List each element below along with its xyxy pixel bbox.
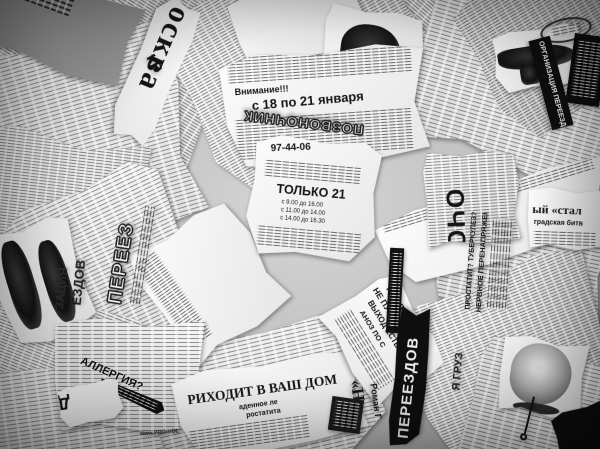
dark-stamp (328, 396, 364, 434)
website-url: www.PRO-VOL (140, 430, 180, 438)
face-photo (507, 340, 576, 409)
prostatit-scrap: ПРОСТАТИТ? ТУБЕРКУЛЕЗ? НЕРВНОЕ ПЕРЕНАПРЯ… (459, 211, 522, 315)
scrap-paper: ПРОСТАТИТ? ТУБЕРКУЛЕЗ? НЕРВНОЕ ПЕРЕНАПРЯ… (459, 211, 522, 315)
stal-headline-scrap: ый «стал градская битв (527, 187, 600, 252)
text-block (264, 160, 361, 184)
text-block (533, 231, 595, 247)
headline-pereezdov: ПЕРЕЕЗДОВ (396, 336, 422, 439)
scrap-paper: ый «стал градская битв (527, 187, 600, 252)
headline-stal: ый «стал (532, 203, 582, 217)
newspaper-collage-photo: осква кв Внимание!!! с 18 по 21 января П… (0, 0, 600, 449)
headline-ezdov: ЕЗДОВ (70, 259, 88, 306)
byline-roman: Роман Г (368, 383, 382, 420)
stamp-speckle (332, 401, 360, 430)
chip-text-lines (570, 40, 600, 99)
pen-ring (519, 433, 527, 441)
text-block (188, 415, 310, 449)
headline-pozvonochnik: ПОЗВОНОЧНИК (243, 109, 365, 138)
headline-tolko21: ТОЛЬКО 21 (276, 183, 346, 201)
scrap-paper: Я ГРУЗ (445, 324, 481, 396)
zaciya-ezdov-scrap: ЗАЦИЯ ЕЗДОВ (48, 225, 101, 319)
headline-zaciya: ЗАЦИЯ (53, 267, 69, 310)
ya-gruz-scrap: Я ГРУЗ (445, 324, 481, 396)
headline-block (3, 0, 76, 16)
subhead-stal: градская битв (534, 219, 583, 228)
stamp-block-scrap (328, 396, 364, 434)
headline-kv: кв (143, 50, 167, 75)
scrap-paper: ЗАЦИЯ ЕЗДОВ (48, 225, 101, 319)
text-block (487, 219, 513, 310)
text-block (256, 225, 361, 254)
headline-ya-gruz: Я ГРУЗ (451, 352, 465, 391)
schedule-line-3: с 14.00 до 16.30 (280, 215, 325, 225)
